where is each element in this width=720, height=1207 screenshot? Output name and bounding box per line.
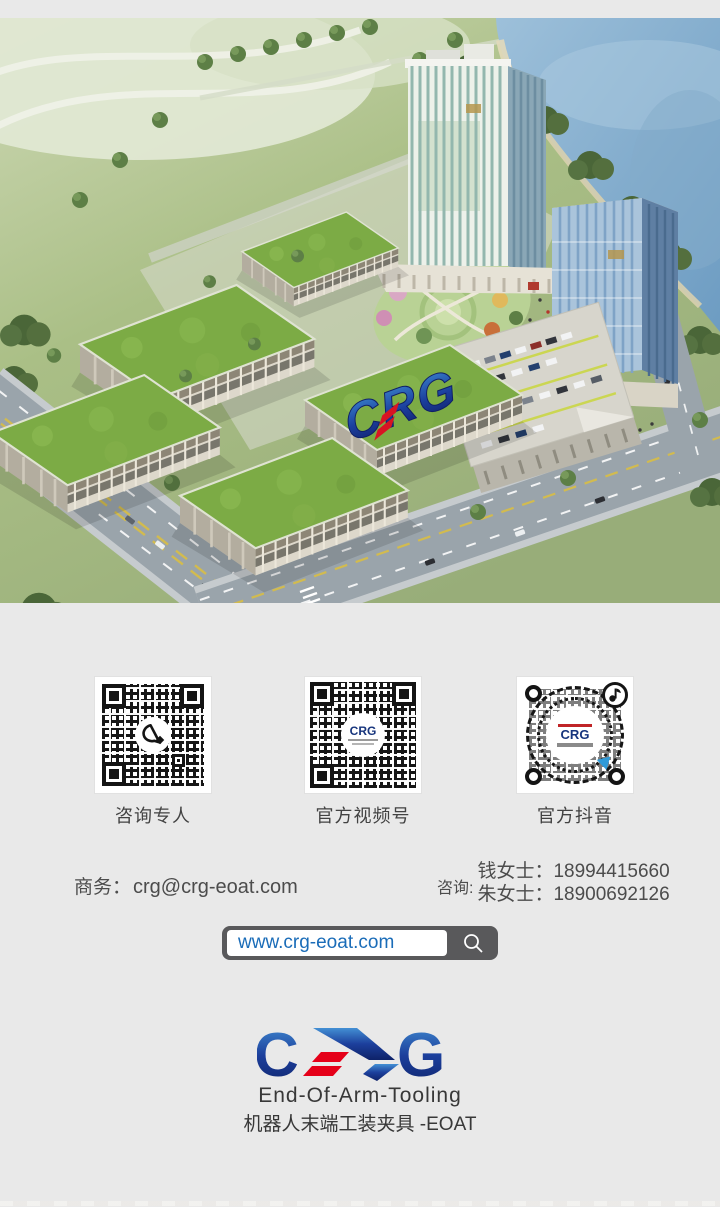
tagline-english: End-Of-Arm-Tooling (0, 1084, 720, 1108)
crg-r-glyph (303, 1028, 399, 1081)
page-bottom-texture (0, 1201, 720, 1206)
qr-finder (102, 762, 126, 786)
crg-logo: C G (257, 1026, 463, 1082)
consult-contact: 咨询: 钱女士：18994415660 朱女士：18900692126 (437, 860, 670, 906)
qr-label-consult: 咨询专人 (95, 802, 211, 828)
qr-center-crg-logo: CRG (341, 713, 385, 757)
campus-aerial-illustration: CRG (0, 18, 720, 603)
business-contact: 商务： crg@crg-eoat.com (74, 872, 298, 899)
qr-label-douyin: 官方抖音 (517, 802, 633, 828)
qr-item-douyin: CRG 官方抖音 (517, 677, 633, 828)
qr-label-video-channel: 官方视频号 (305, 802, 421, 828)
business-label: 商务： (74, 872, 131, 899)
qr-code-douyin: CRG (517, 677, 633, 793)
crg-letter-c: C (257, 1026, 298, 1082)
qr-finder (392, 682, 416, 706)
qr-alignment (172, 754, 185, 767)
qr-finder (102, 684, 126, 708)
consult-phone-line: 钱女士：18994415660 (477, 860, 669, 883)
wechat-chat-bubble-icon (135, 717, 171, 753)
qr-corner-dot (525, 768, 542, 785)
business-email: crg@crg-eoat.com (133, 876, 298, 899)
qr-finder (310, 764, 334, 788)
qr-corner-dot (608, 768, 625, 785)
qr-corner-dot (525, 685, 542, 702)
crg-letter-g: G (397, 1026, 445, 1082)
magnifier-icon (462, 932, 484, 954)
qr-item-consult: 咨询专人 (95, 677, 211, 828)
qr-code-consult (95, 677, 211, 793)
tagline-chinese: 机器人末端工装夹具 -EOAT (0, 1109, 720, 1136)
consult-phone-line: 朱女士：18900692126 (477, 883, 669, 906)
campus-aerial-photo: CRG (0, 18, 720, 603)
qr-center-crg-logo: CRG (546, 706, 604, 764)
footer-logo-block: C G End-Of-Arm-Tooling 机器人末端工装夹具 -EOAT (0, 1026, 720, 1136)
poster-page: CRG 咨询专人 (0, 0, 720, 1207)
qr-code-video-channel: CRG (305, 677, 421, 793)
consult-label: 咨询: (437, 874, 473, 898)
url-search-bar: www.crg-eoat.com (222, 926, 498, 960)
search-button[interactable] (448, 926, 498, 960)
qr-finder (180, 684, 204, 708)
qr-item-video-channel: CRG 官方视频号 (305, 677, 421, 828)
tiktok-note-icon (602, 682, 628, 708)
url-field[interactable]: www.crg-eoat.com (227, 930, 447, 956)
qr-finder (310, 682, 334, 706)
